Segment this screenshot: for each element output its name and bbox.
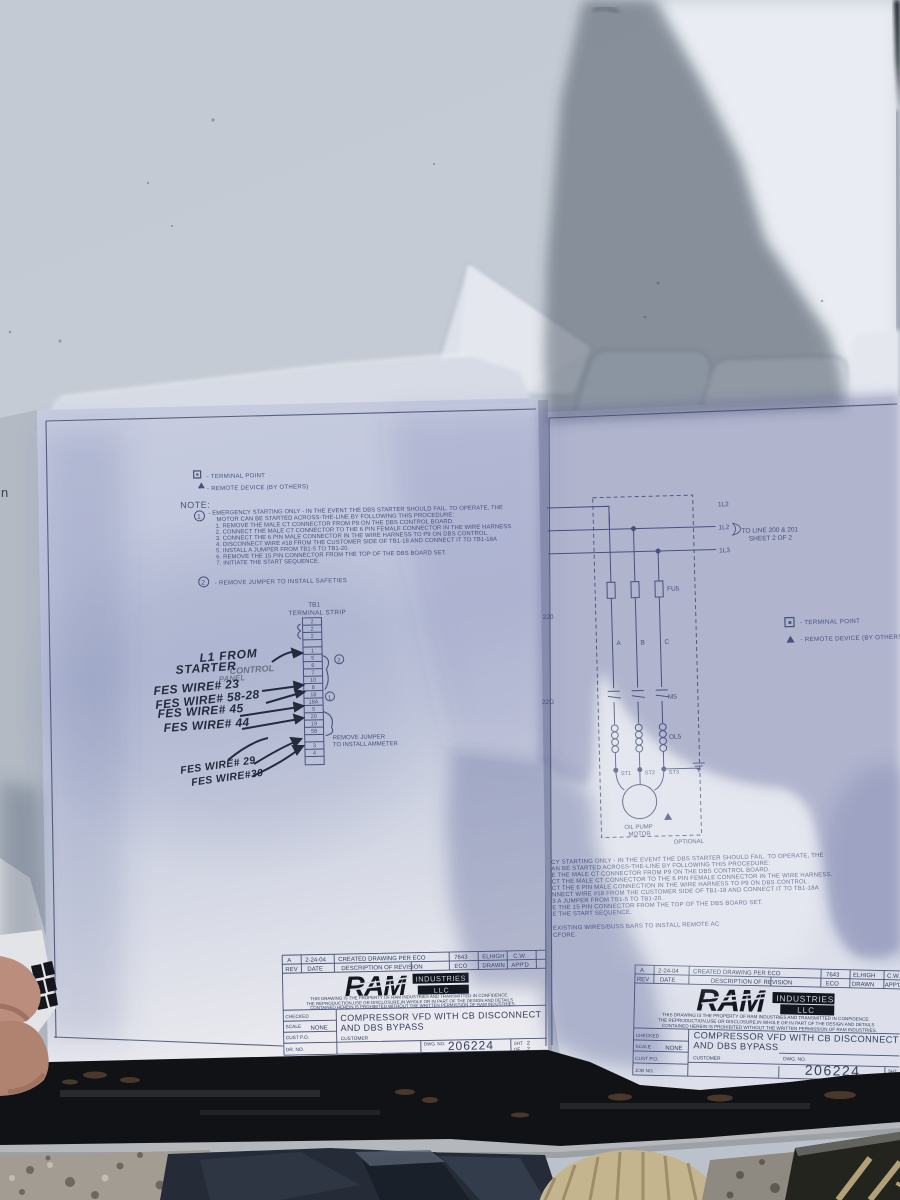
svg-text:2-24-04: 2-24-04 <box>305 957 326 963</box>
svg-text:NONE: NONE <box>310 1025 327 1031</box>
svg-text:CHECKED: CHECKED <box>285 1014 309 1020</box>
svg-text:SHT: SHT <box>514 1041 523 1046</box>
svg-text:CUSTOMER: CUSTOMER <box>693 1055 721 1062</box>
svg-text:n: n <box>1 485 8 500</box>
svg-text:DR. NO.: DR. NO. <box>286 1047 304 1053</box>
svg-text:DWG. NO.: DWG. NO. <box>783 1056 806 1063</box>
svg-text:APP'D: APP'D <box>885 983 900 989</box>
svg-text:A: A <box>287 958 291 964</box>
svg-text:LLC: LLC <box>797 1006 815 1015</box>
svg-text:ECO: ECO <box>826 981 839 987</box>
svg-text:NOTE:: NOTE: <box>180 500 210 511</box>
svg-text:INDUSTRIES: INDUSTRIES <box>776 993 834 1004</box>
svg-text:INDUSTRIES: INDUSTRIES <box>416 974 467 984</box>
svg-text:NONE: NONE <box>665 1046 682 1052</box>
svg-text:CUST P.O.: CUST P.O. <box>286 1035 309 1041</box>
svg-text:C.W.: C.W. <box>887 974 900 980</box>
svg-text:- TERMINAL POINT: - TERMINAL POINT <box>207 473 266 480</box>
svg-text:DATE: DATE <box>307 966 323 972</box>
svg-text:CUSTOMER: CUSTOMER <box>341 1036 369 1043</box>
svg-text:AND DBS BYPASS: AND DBS BYPASS <box>340 1022 424 1034</box>
svg-text:REV: REV <box>285 967 297 973</box>
svg-text:DRAWN: DRAWN <box>852 982 875 989</box>
svg-text:7643: 7643 <box>826 972 840 978</box>
svg-text:DWG. NO.: DWG. NO. <box>424 1041 446 1046</box>
svg-text:AND DBS BYPASS: AND DBS BYPASS <box>693 1040 778 1052</box>
svg-text:206224: 206224 <box>448 1038 494 1053</box>
svg-text:ELHIGH: ELHIGH <box>853 973 875 980</box>
svg-text:SCALE: SCALE <box>285 1024 301 1030</box>
